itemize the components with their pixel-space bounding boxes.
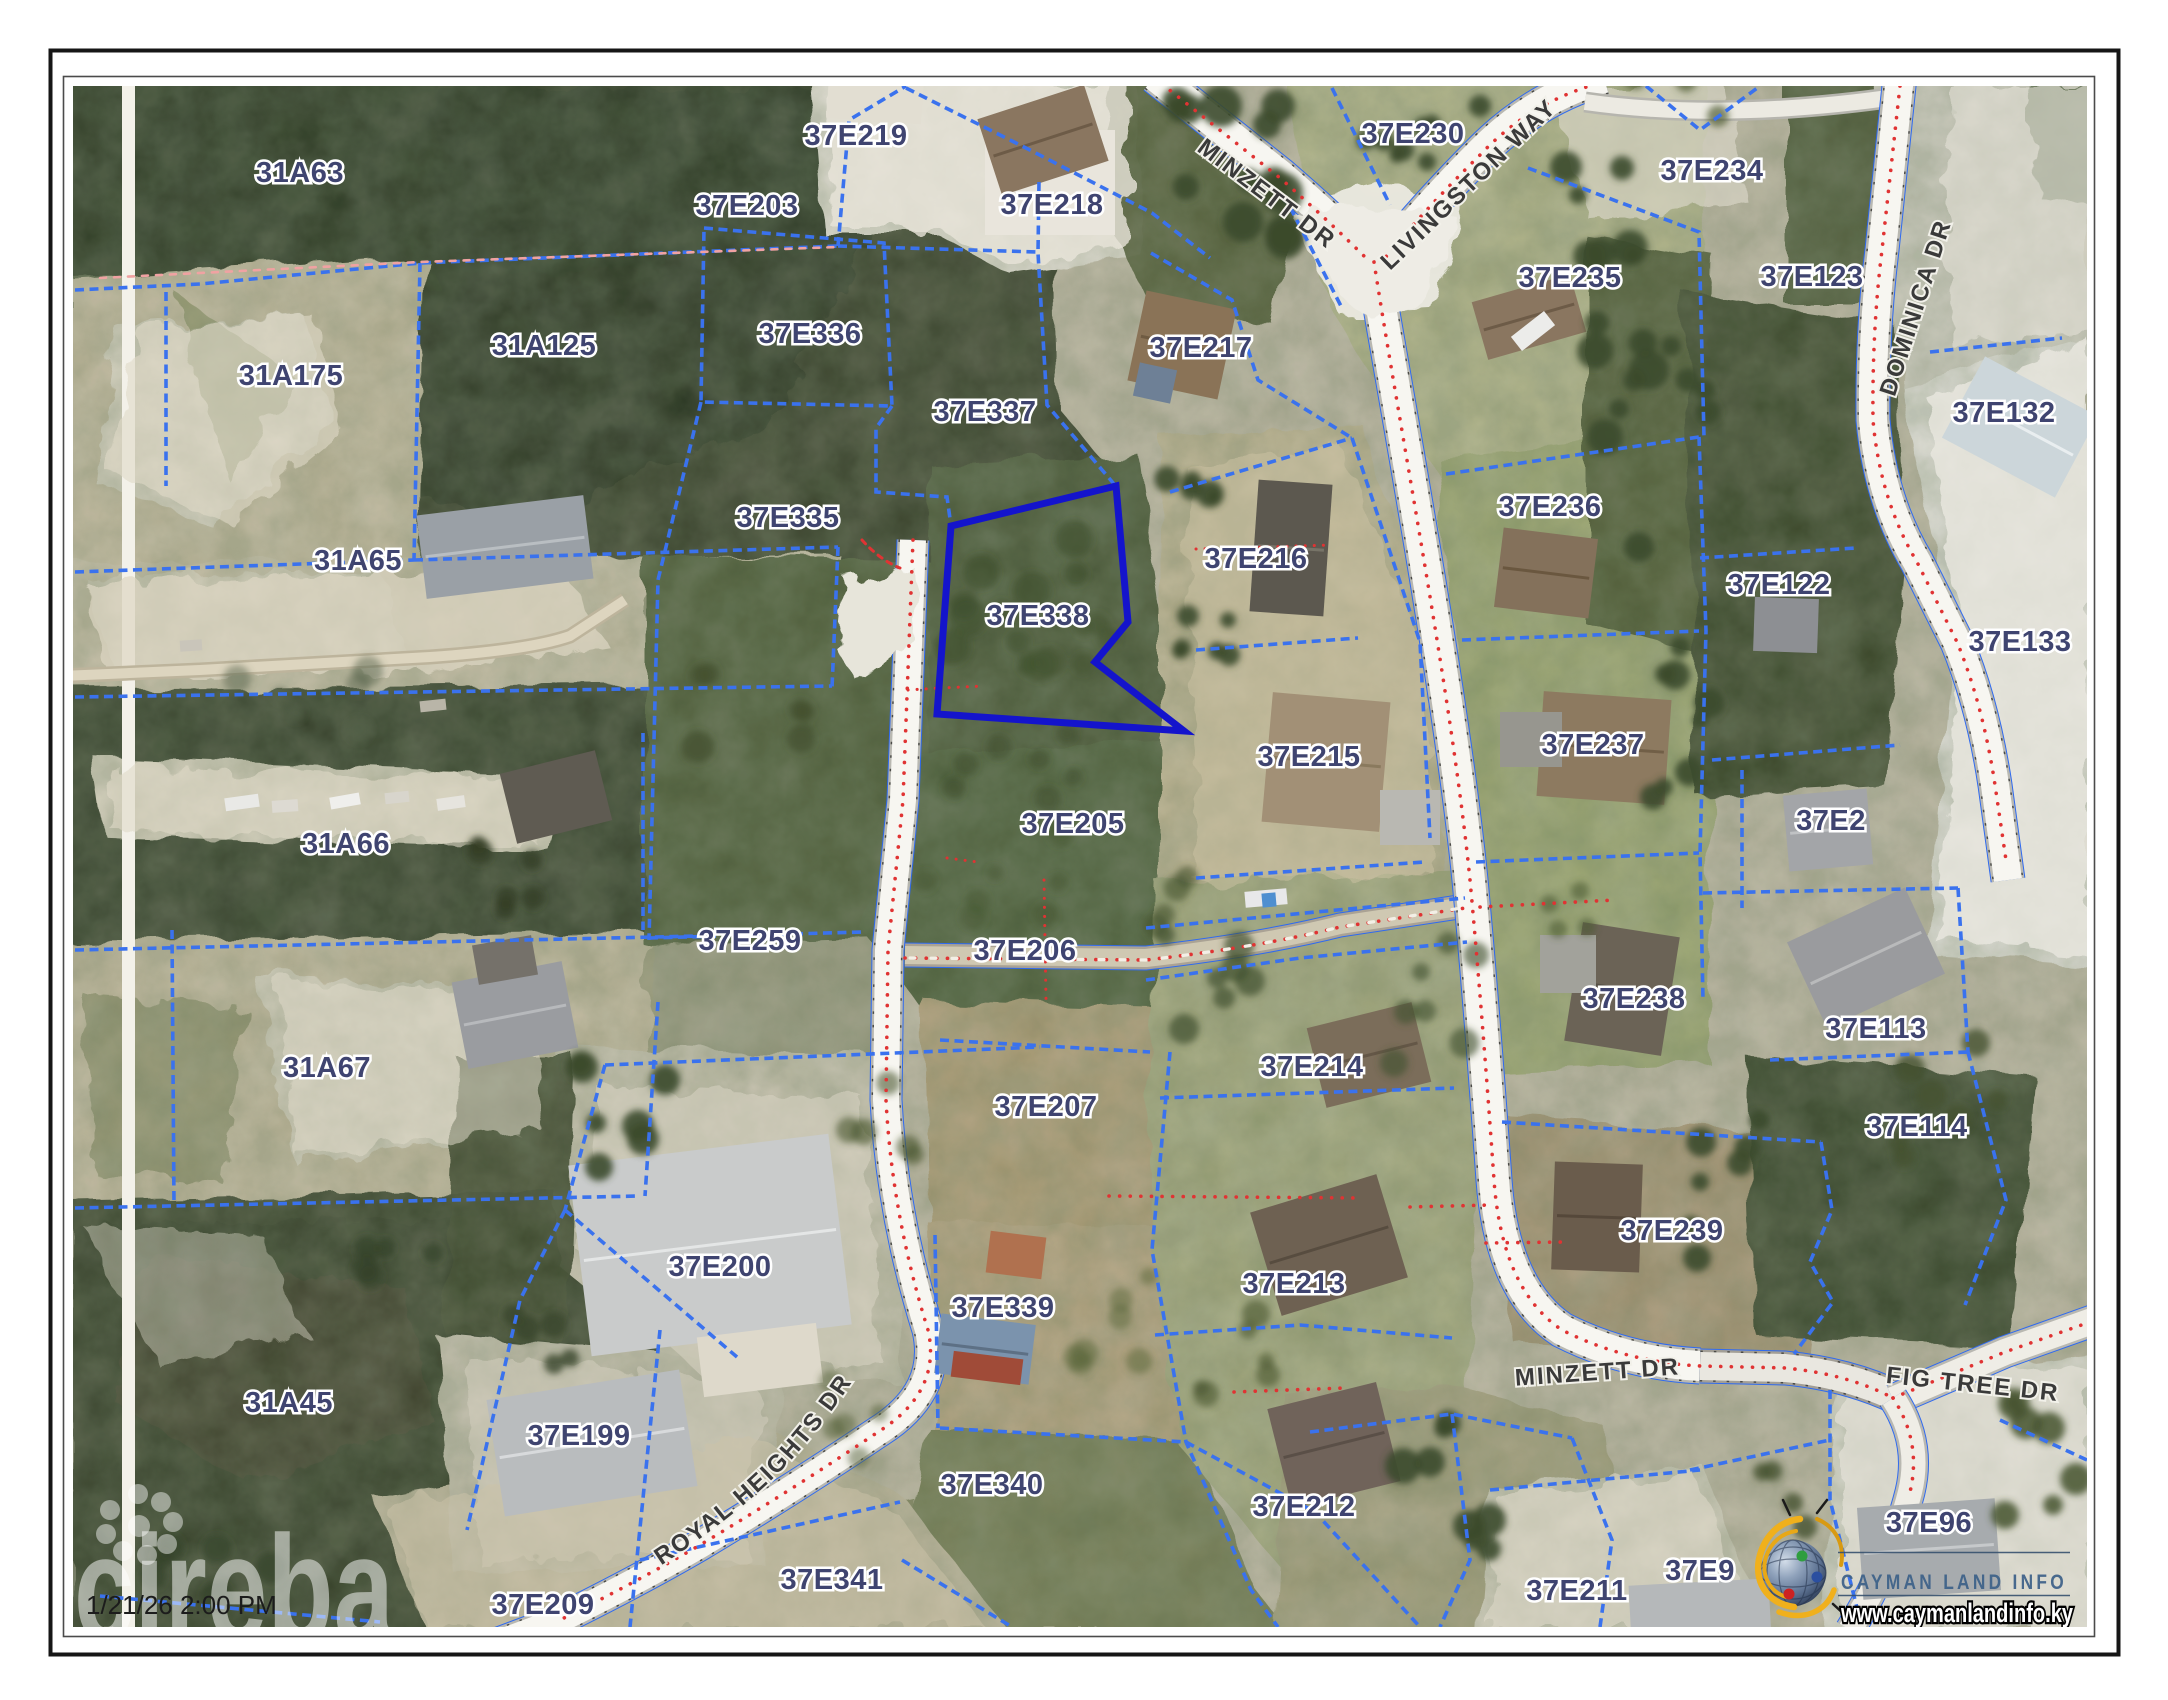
svg-text:37E238: 37E238 xyxy=(1583,983,1686,1015)
svg-text:37E96: 37E96 xyxy=(1886,1507,1972,1539)
svg-text:37E205: 37E205 xyxy=(1022,808,1125,840)
svg-text:37E215: 37E215 xyxy=(1258,741,1361,773)
svg-text:37E113: 37E113 xyxy=(1825,1013,1926,1045)
svg-text:37E209: 37E209 xyxy=(492,1589,595,1621)
svg-text:37E212: 37E212 xyxy=(1253,1491,1356,1523)
svg-text:31A45: 31A45 xyxy=(245,1387,333,1419)
svg-text:www.caymanlandinfo.ky: www.caymanlandinfo.ky xyxy=(1840,1598,2073,1628)
svg-text:37E217: 37E217 xyxy=(1150,332,1253,364)
svg-text:37E335: 37E335 xyxy=(737,502,840,534)
svg-text:37E114: 37E114 xyxy=(1866,1111,1967,1143)
svg-text:37E236: 37E236 xyxy=(1499,491,1602,523)
svg-text:37E336: 37E336 xyxy=(759,318,862,350)
svg-text:37E339: 37E339 xyxy=(952,1292,1055,1324)
svg-text:37E235: 37E235 xyxy=(1519,262,1622,294)
svg-text:31A65: 31A65 xyxy=(314,545,402,577)
svg-text:37E218: 37E218 xyxy=(1001,189,1104,221)
svg-text:37E211: 37E211 xyxy=(1526,1575,1627,1607)
svg-text:37E206: 37E206 xyxy=(974,935,1077,967)
svg-text:1/21/26 2:00 PM: 1/21/26 2:00 PM xyxy=(86,1590,277,1620)
svg-text:37E200: 37E200 xyxy=(669,1251,772,1283)
svg-text:37E219: 37E219 xyxy=(805,120,908,152)
svg-text:31A63: 31A63 xyxy=(256,157,344,189)
svg-text:37E123: 37E123 xyxy=(1761,261,1864,293)
svg-text:37E199: 37E199 xyxy=(528,1420,631,1452)
svg-text:37E341: 37E341 xyxy=(781,1564,884,1596)
svg-text:37E207: 37E207 xyxy=(995,1091,1098,1123)
svg-text:37E337: 37E337 xyxy=(934,396,1037,428)
svg-text:37E239: 37E239 xyxy=(1621,1215,1724,1247)
svg-text:37E237: 37E237 xyxy=(1542,729,1645,761)
svg-text:37E230: 37E230 xyxy=(1362,118,1465,150)
svg-text:37E234: 37E234 xyxy=(1661,155,1764,187)
svg-text:37E133: 37E133 xyxy=(1969,626,2072,658)
svg-text:37E132: 37E132 xyxy=(1953,397,2056,429)
svg-text:37E122: 37E122 xyxy=(1728,569,1831,601)
svg-text:CAYMAN LAND INFO: CAYMAN LAND INFO xyxy=(1841,1571,2067,1594)
svg-text:31A67: 31A67 xyxy=(283,1052,371,1084)
svg-text:37E213: 37E213 xyxy=(1243,1268,1346,1300)
svg-text:37E259: 37E259 xyxy=(699,925,802,957)
svg-text:37E338: 37E338 xyxy=(987,600,1090,632)
svg-text:31A175: 31A175 xyxy=(239,360,344,392)
svg-text:37E216: 37E216 xyxy=(1205,543,1308,575)
svg-text:37E214: 37E214 xyxy=(1261,1051,1364,1083)
svg-text:37E2: 37E2 xyxy=(1796,805,1866,837)
svg-text:37E203: 37E203 xyxy=(696,190,799,222)
svg-text:37E340: 37E340 xyxy=(941,1469,1044,1501)
svg-text:31A125: 31A125 xyxy=(492,330,597,362)
svg-text:37E9: 37E9 xyxy=(1665,1555,1735,1587)
svg-text:31A66: 31A66 xyxy=(302,828,390,860)
